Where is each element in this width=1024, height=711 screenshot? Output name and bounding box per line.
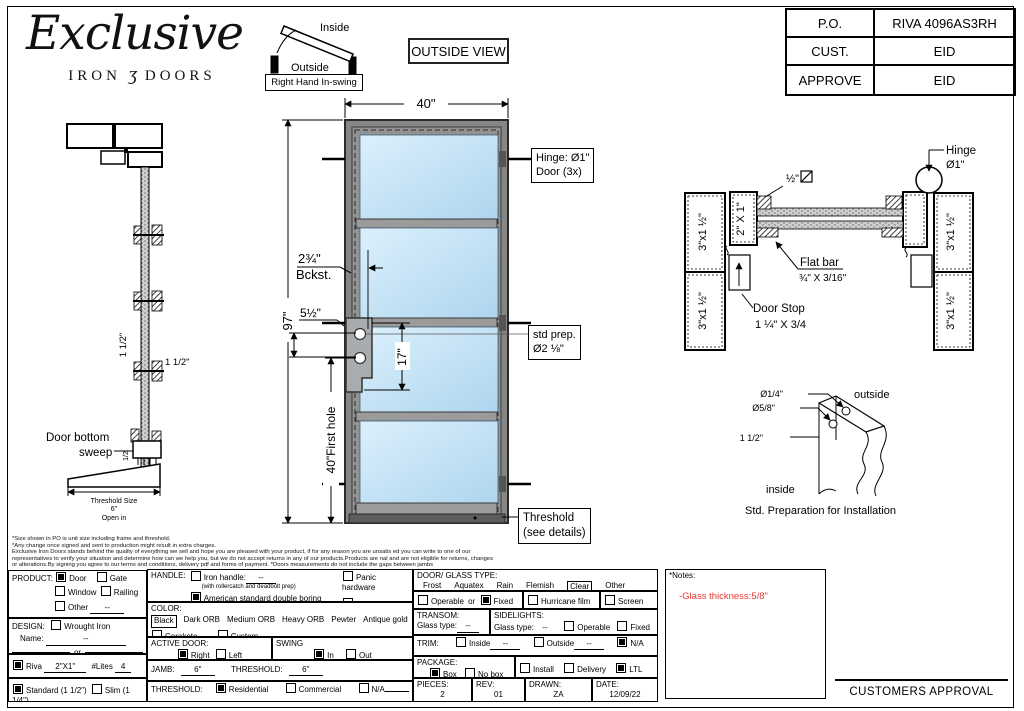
install-label: Install [533,665,554,674]
riva-checkbox[interactable] [13,660,23,670]
product-door-label: Door [69,574,86,583]
sidelights-fixed-checkbox[interactable] [617,621,627,631]
shipping-cell: Install Delivery LTL [515,656,658,678]
trim-inside-label: Inside [469,639,490,648]
slim-checkbox[interactable] [92,684,102,694]
disclaimer-line: or alterations.By signing you agree to o… [12,562,493,569]
product-cell: PRODUCT: Door Gate Window Railing Other … [8,570,147,618]
fixed-checkbox[interactable] [481,595,491,605]
iron-handle-label: Iron handle: [204,573,246,582]
commercial-label: Commercial [299,685,342,694]
swing-diagram: Inside Outside [271,22,356,74]
product-other-checkbox[interactable] [55,601,65,611]
iron-handle-subnote: (with rollercatch and deadbolt prep) [202,584,342,592]
threshold-open-label: Open in [102,515,127,522]
drawn-label: DRAWN: [529,680,588,690]
disclaimer-line: Exclusive Iron Doors stands behind the q… [12,549,493,556]
threshold-size-value: 6" [111,506,118,513]
date-cell: DATE: 12/09/22 [592,678,658,702]
prep-outside-label: outside [854,389,889,401]
threshold-note-line1: Threshold [523,511,586,526]
glass-thickness-dim: ½" [786,173,799,185]
door-stop-dim: 1 ¼" X 3/4 [755,319,806,331]
package-cell: PACKAGE: Box No box [413,656,515,678]
riva-label: Riva [26,662,42,671]
flat-bar-label: Flat bar [800,257,839,269]
riva-cell: Riva 2"X1" #Lites 4 [8,654,147,678]
trim-label: TRIM: [417,639,439,648]
jamb-dim-vertical: 1 1/2" [118,333,129,358]
backset-label: Bckst. [296,267,331,282]
prep-offset-dim: 1 1/2" [740,433,763,443]
product-door-checkbox[interactable] [56,572,66,582]
package-label: PACKAGE: [417,658,511,668]
door-height-dim: 97" [280,311,295,330]
color-option-antiquegold[interactable]: Antique gold [363,615,407,627]
residential-checkbox[interactable] [216,683,226,693]
active-door-label: ACTIVE DOOR: [151,639,268,649]
jamb-dim-horizontal: 1 1/2" [165,357,190,368]
std-prep-note-line2: Ø2 ⅛" [533,342,576,356]
glass-option-flemish[interactable]: Flemish [526,581,554,591]
design-name-label: Name: [20,634,44,643]
color-option-darkorb[interactable]: Dark ORB [184,615,220,627]
drawing-sheet: Exclusive IRON ʒ DOORS OUTSIDE VIEW Righ… [0,0,1024,711]
design-label: DESIGN: [12,622,45,631]
glass-option-clear[interactable]: Clear [567,581,592,591]
standard-checkbox[interactable] [13,684,23,694]
design-name-value[interactable]: -- [46,634,126,645]
trim-na-checkbox[interactable] [617,637,627,647]
jamb-threshold-value[interactable]: 6" [289,665,323,676]
ltl-checkbox[interactable] [616,663,626,673]
hurricane-cell: Hurricane film [523,591,600,609]
color-option-heavyorb[interactable]: Heavy ORB [282,615,324,627]
product-other-value[interactable]: -- [90,603,124,614]
disclaimer-line: *Size shown in PO is unit size including… [12,536,493,543]
package-nobox-label: No box [478,670,503,678]
trim-outside-label: Outside [547,639,575,648]
design-wrought-checkbox[interactable] [51,620,61,630]
profile-3x15-label-b: 3"x1 ½" [697,292,709,330]
threshold-na-checkbox[interactable] [359,683,369,693]
swing-in-checkbox[interactable] [314,649,324,659]
active-door-cell: ACTIVE DOOR: Right Left [147,637,272,660]
rev-label: REV: [476,680,521,690]
swing-cell: SWING In Out [272,637,413,660]
riva-size-value[interactable]: 2"X1" [44,662,86,673]
fixed-label: Fixed [494,597,514,606]
glass-option-other[interactable]: Other [605,581,625,591]
order-form: PRODUCT: Door Gate Window Railing Other … [8,569,1013,703]
transom-glass-value[interactable]: -- [457,621,479,632]
product-label: PRODUCT: [12,574,53,583]
glass-option-rain[interactable]: Rain [497,581,513,591]
handle-cell: HANDLE: Iron handle:-- (with rollercatch… [147,569,413,602]
package-box-checkbox[interactable] [430,668,440,678]
product-gate-checkbox[interactable] [97,572,107,582]
door-bottom-sweep-label-2: sweep [79,447,112,459]
active-right-label: Right [191,651,210,660]
active-left-label: Left [229,651,242,660]
delivery-checkbox[interactable] [564,663,574,673]
flat-bar-dim: ¾" X 3/16" [799,273,847,284]
ltl-label: LTL [629,665,642,674]
threshold-note-line2: (see details) [523,526,586,541]
lites-value[interactable]: 4 [115,662,131,673]
iron-handle-value[interactable]: -- [246,573,276,584]
frame-profile-section: 3"x1 ½" 3"x1 ½" 2" X 1" 3"x1 ½" 3"x1 ½" [685,145,976,350]
jamb-label: JAMB: [151,665,175,674]
door-stop-label: Door Stop [753,303,805,315]
active-right-checkbox[interactable] [178,649,188,659]
product-window-label: Window [68,588,96,597]
swing-out-label: Out [359,651,372,660]
sidelights-operable-label: Operable [577,623,610,632]
glass-type-label: DOOR/ GLASS TYPE: [417,571,654,581]
color-cell: COLOR: Black Dark ORB Medium ORB Heavy O… [147,602,413,637]
hole-gap-dim: 5½" [300,306,321,320]
swing-in-label: In [327,651,334,660]
glass-option-frost[interactable]: Frost [423,581,441,591]
lock-hole-top [355,329,366,340]
jamb-value[interactable]: 6" [181,665,215,676]
door-width-dim: 40" [416,96,435,111]
disclaimer: *Size shown in PO is unit size including… [12,536,493,569]
profile-3x15-label-c: 3"x1 ½" [945,213,957,251]
lock-span-dim: 17" [395,348,409,366]
product-other-label: Other [68,603,88,612]
rev-cell: REV: 01 [472,678,525,702]
install-checkbox[interactable] [520,663,530,673]
glass-type-cell: DOOR/ GLASS TYPE: Frost Aquatex Rain Fle… [413,569,658,591]
threshold-size-label: Threshold Size [91,498,138,505]
trim-cell: TRIM: Inside-- Outside-- N/A [413,635,658,656]
design-wrought-label: Wrought Iron [64,622,110,631]
profile-3x15-label-d: 3"x1 ½" [945,292,957,330]
product-railing-checkbox[interactable] [101,586,111,596]
swing-out-checkbox[interactable] [346,649,356,659]
hinge-note-line2: Door (3x) [536,165,589,179]
residential-label: Residential [229,685,269,694]
american-boring-label: American standard double boring [204,594,322,602]
rev-value[interactable]: 01 [486,690,512,701]
standard-label: Standard (1 1/2") [26,686,87,695]
threshold-na-label: N/A [372,685,385,694]
american-boring-checkbox[interactable] [191,592,201,602]
product-window-checkbox[interactable] [55,586,65,596]
lock-hole-bottom [355,353,366,364]
backset-dim: 2¾" [298,251,321,266]
operable-checkbox[interactable] [418,595,428,605]
sidelights-cell: SIDELIGHTS: Glass type:-- Operable Fixed [490,609,658,635]
color-option-pewter[interactable]: Pewter [331,615,356,627]
hurricane-label: Hurricane film [541,597,590,606]
hinge-label: Hinge [946,145,976,157]
color-label: COLOR: [151,604,409,614]
handle-label: HANDLE: [151,571,186,602]
threshold-cell: THRESHOLD: Residential Commercial N/A [147,681,413,702]
sidelights-operable-checkbox[interactable] [564,621,574,631]
date-label: DATE: [596,680,654,690]
disclaimer-line: *Any change once signed and sent to prod… [12,543,493,550]
sidelights-label: SIDELIGHTS: [494,611,654,621]
sidelights-fixed-label: Fixed [630,623,650,632]
trim-na-label: N/A [630,639,643,648]
color-option-black[interactable]: Black [151,615,177,627]
prep-dia-big: Ø5/8" [752,403,775,413]
operable-label: Operable [431,597,464,606]
active-left-checkbox[interactable] [216,649,226,659]
operable-or-label: or [468,597,475,606]
custom-color-checkbox[interactable] [218,630,228,637]
threshold-form-label: THRESHOLD: [151,685,203,694]
std-prep-note-line1: std prep. [533,328,576,342]
package-box-label: Box [443,670,457,678]
glass-option-aquatex[interactable]: Aquatex [454,581,483,591]
drawn-value[interactable]: ZA [545,690,573,701]
threshold-note: Threshold (see details) [518,508,591,544]
profile-3x15-label-a: 3"x1 ½" [697,213,709,251]
profile-2x1-label: 2" X 1" [735,202,747,236]
screen-label: Screen [618,597,643,606]
pieces-cell: PIECES: 2 [413,678,472,702]
prep-inside-label: inside [766,484,795,496]
operable-fixed-cell: Operable or Fixed [413,591,523,609]
sidelights-glass-label: Glass type: [494,623,534,632]
panic-checkbox[interactable] [343,571,353,581]
pieces-label: PIECES: [417,680,468,690]
jamb-cell: JAMB: 6" THRESHOLD: 6" [147,660,413,681]
first-hole-dim: 40"First hole [324,406,338,473]
lites-label: #Lites [91,662,112,671]
frame-type-cell: Standard (1 1/2") Slim (1 1/4") [8,678,147,702]
customers-approval[interactable]: CUSTOMERS APPROVAL [835,679,1008,700]
notes-cell: *Notes: -Glass thickness:5/8" [665,569,826,699]
date-value[interactable]: 12/09/22 [605,690,645,701]
transom-glass-label: Glass type: [417,621,457,630]
design-cell: DESIGN: Wrought Iron Name: -- or [8,618,147,654]
iron-handle-checkbox[interactable] [191,571,201,581]
trim-inside-checkbox[interactable] [456,637,466,647]
screen-checkbox[interactable] [605,595,615,605]
drawn-cell: DRAWN: ZA [525,678,592,702]
sidelights-glass-value[interactable]: -- [534,623,556,634]
customers-approval-label: CUSTOMERS APPROVAL [849,686,993,698]
trim-outside-value[interactable]: -- [574,639,604,650]
product-gate-label: Gate [110,574,127,583]
prep-dia-small: Ø1/4" [760,389,783,399]
sweep-height-dim: 1/2 [123,451,130,461]
package-nobox-checkbox[interactable] [465,668,475,678]
std-prep-note: std prep. Ø2 ⅛" [528,325,581,360]
jamb-vertical-section: 1 1/2" 1 1/2" 1/2 Door bottom sweep Thre… [46,124,190,522]
pieces-value[interactable]: 2 [430,690,456,701]
cerakote-checkbox[interactable] [152,630,162,637]
commercial-checkbox[interactable] [286,683,296,693]
door-bottom-sweep-label-1: Door bottom [46,432,109,444]
disclaimer-line: representatives to verify your situation… [12,556,493,563]
hinge-note: Hinge: Ø1" Door (3x) [531,148,594,183]
swing-inside-label: Inside [320,22,349,34]
hinge-dim: Ø1" [946,159,965,171]
install-prep-sketch: Ø1/4" Ø5/8" 1 1/2" outside inside Std. P… [740,389,896,517]
swing-outside-label: Outside [291,62,329,74]
jamb-threshold-label: THRESHOLD: [231,665,283,674]
transom-label: TRANSOM: [417,611,486,621]
screen-cell: Screen [600,591,658,609]
trim-outside-checkbox[interactable] [534,637,544,647]
transom-cell: TRANSOM: Glass type:-- [413,609,490,635]
door-elevation [322,120,531,523]
notes-body: -Glass thickness:5/8" [679,591,822,603]
hinge-note-line1: Hinge: Ø1" [536,151,589,165]
swing-form-label: SWING [276,639,409,649]
trim-inside-value[interactable]: -- [490,639,520,650]
prep-caption: Std. Preparation for Installation [745,505,896,517]
notes-title: *Notes: [669,571,822,581]
delivery-label: Delivery [577,665,606,674]
product-railing-label: Railing [114,588,138,597]
color-option-mediumorb[interactable]: Medium ORB [227,615,275,627]
hurricane-checkbox[interactable] [528,595,538,605]
